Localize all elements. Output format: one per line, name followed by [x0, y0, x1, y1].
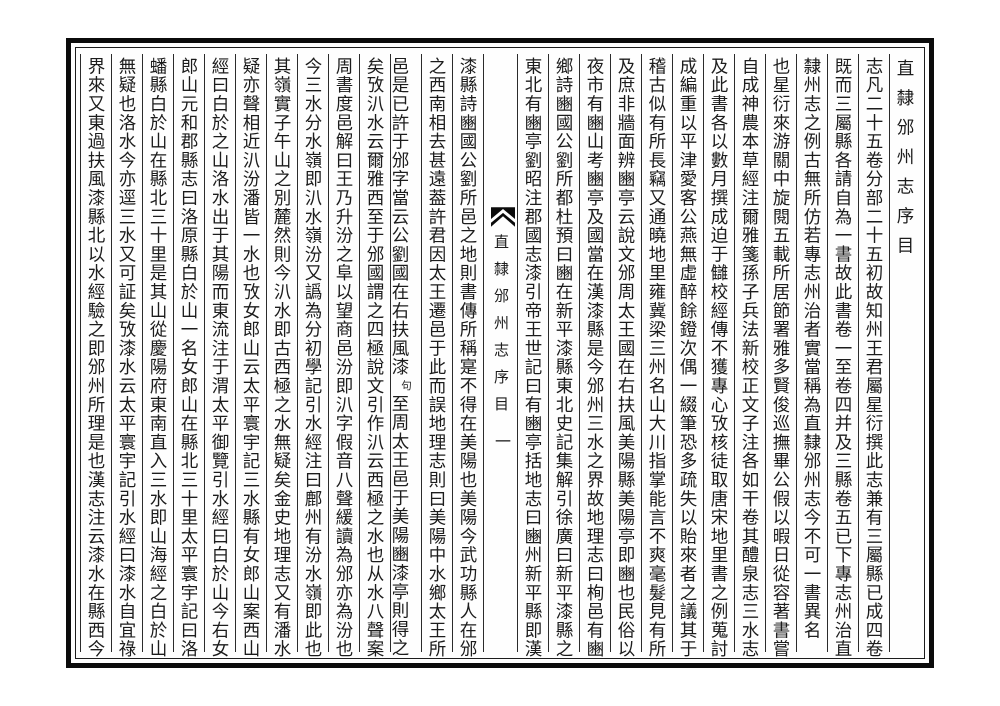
note-pre-text: 邑是已許于邠字當云公劉國在右扶風漆 — [390, 57, 410, 377]
text-column: 漆縣詩豳國公劉所邑之地則書傳所稱寔不得在美陽也美陽今武功縣人在邠 — [452, 54, 483, 652]
text-column: 也星衍來游關中旋閱五載所居節署雅多賢俊巡撫畢公假以暇日從容著書嘗 — [765, 54, 796, 652]
inner-border: 直隸邠州志序目 志凡二十五卷分部二十五初故知州王君屬星衍撰此志兼有三屬縣已成四卷… — [75, 47, 925, 659]
text-column: 經曰白於之山洛水出于其陽而東流注于渭太平御覽引水經曰白於山今右女 — [204, 54, 235, 652]
text-column: 蟠縣白於山在縣北三十里是其山從慶陽府東南直入三水即山海經之白於山 — [142, 54, 173, 652]
text-column: 夜市有豳山考豳亭及國當在漢漆縣是今邠州三水之界故地理志曰栒邑有豳 — [579, 54, 610, 652]
text-column: 今三水分水嶺即汃水嶺汾又譌為分初學記引水經注曰鄜州有汾水嶺即此也 — [297, 54, 328, 652]
note-post-text: 至周太王邑于美陽豳漆亭則得之 — [390, 394, 410, 657]
banxin-column: 直隸邠州志序目一 — [483, 54, 517, 652]
text-column: 郎山元和郡縣志曰洛原縣白於山一名女郎山在縣北三十里太平寰宇記曰洛 — [173, 54, 204, 652]
text-column: 志凡二十五卷分部二十五初故知州王君屬星衍撰此志兼有三屬縣已成四卷 — [858, 54, 889, 652]
text-column: 及此書各以數月撰成迫于讎校經傳不獲專心攷核徒取唐宋地里書之例蒐討 — [703, 54, 734, 652]
text-column: 鄉詩豳國公劉所都杜預曰豳在新平漆縣東北史記集解引徐廣曰新平漆縣之 — [548, 54, 579, 652]
text-column: 矣攷汃水云爾雅西至于邠國謂之四極說文引作汃云西極之水也从水八聲案 — [359, 54, 390, 652]
text-column: 其嶺實子午山之別麓然則今汃水即古西極之水無疑矣金史地理志又有潘水 — [266, 54, 297, 652]
text-column: 稽古似有所長竊又通曉地里雍冀梁三州名山大川指掌能言不爽毫髮見有所 — [641, 54, 672, 652]
text-column: 東北有豳亭劉昭注郡國志漆引帝王世記曰有豳亭括地志曰豳州新平縣即漢 — [517, 54, 548, 652]
banxin-title: 直隸邠州志序目 — [492, 234, 508, 423]
text-column: 及庶非牆面辨豳亭云說文邠周太王國在右扶風美陽縣美陽亭即豳也民俗以 — [610, 54, 641, 652]
page-number: 一 — [492, 433, 509, 450]
text-column: 自成神農本草經注爾雅箋孫子兵法新校正文子注各如干卷其醴泉志三水志 — [734, 54, 765, 652]
text-column: 疑亦聲相近汃汾潘皆一水也攷女郎山云太平寰宇記三水縣有女郎山案西山 — [235, 54, 266, 652]
text-column: 隸州志之例古無所仿若專志州治者實當稱為直隸邠州志今不可一書異名 — [796, 54, 827, 652]
text-area: 直隸邠州志序目 志凡二十五卷分部二十五初故知州王君屬星衍撰此志兼有三屬縣已成四卷… — [80, 54, 920, 652]
text-column: 無疑也洛水今亦逕三水又可証矣攷漆水云太平寰宇記引水經曰漆水自宜祿 — [111, 54, 142, 652]
text-column: 既而三屬縣各請自為一書故此書卷一至卷四并及三縣卷五已下專志州治直 — [827, 54, 858, 652]
page-title-column: 直隸邠州志序目 — [889, 54, 920, 652]
text-column: 界來又東過扶風漆縣北以水經驗之即邠州所理是也漢志注云漆水在縣西今 — [80, 54, 111, 652]
page-frame: 直隸邠州志序目 志凡二十五卷分部二十五初故知州王君屬星衍撰此志兼有三屬縣已成四卷… — [66, 38, 934, 668]
fishtail-icon — [491, 204, 515, 230]
interlinear-note: 句 — [400, 380, 411, 392]
text-column: 之西南相去甚遠葢許君因太王遷邑于此而誤地理志則曰美陽中水鄉太王所 — [421, 54, 452, 652]
text-column: 周書度邑解曰王乃升汾之阜以望商邑汾即汃字假音八聲緩讀為邠亦為汾也 — [328, 54, 359, 652]
text-column: 成編重以平津愛客公燕無虛醉餘鐙次偶一綴筆恐多疏失以貽來者之議其于 — [672, 54, 703, 652]
text-column-with-note: 邑是已許于邠字當云公劉國在右扶風漆句至周太王邑于美陽豳漆亭則得之 — [390, 54, 421, 652]
